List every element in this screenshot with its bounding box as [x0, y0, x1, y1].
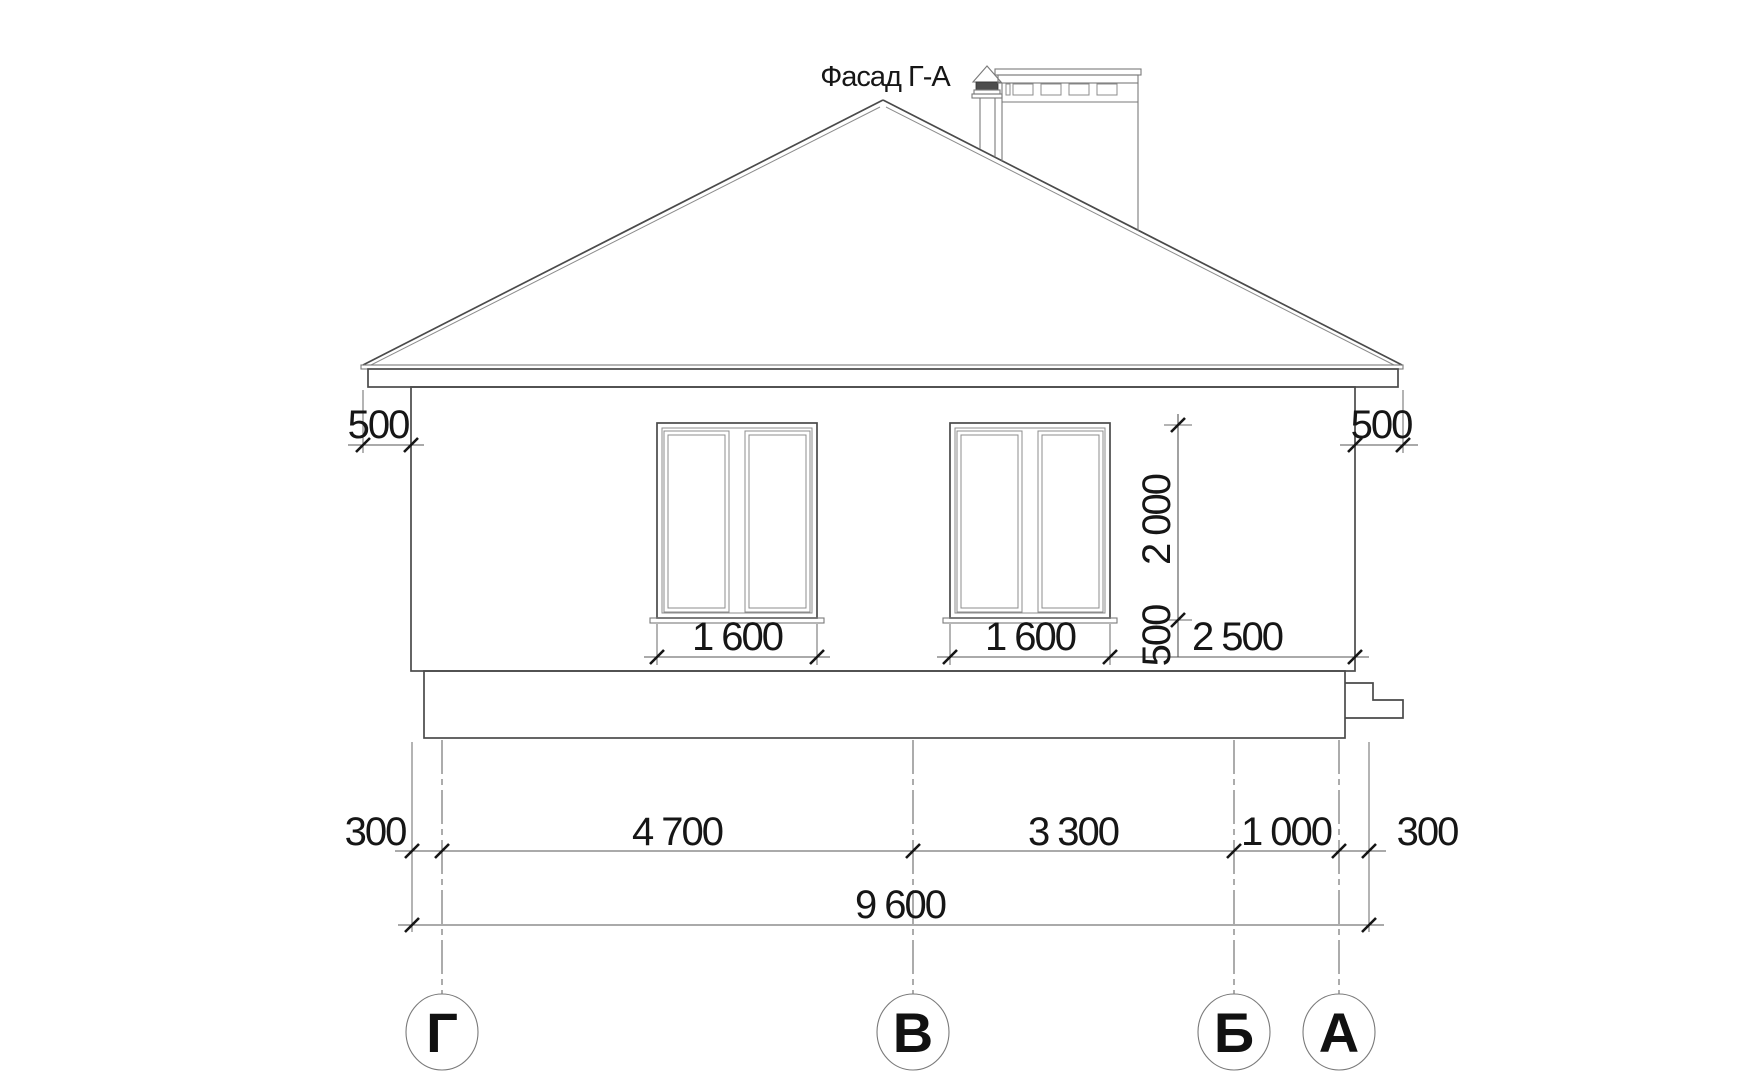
vent-collar	[976, 82, 998, 90]
dim-spacing-4700: 4 700	[632, 810, 723, 854]
axis-label-g: Г	[426, 1001, 458, 1064]
dim-eave-left-value: 500	[348, 403, 409, 447]
facade-elevation-drawing: Фасад Г-А	[0, 0, 1737, 1080]
dim-spacing-3300: 3 300	[1028, 810, 1119, 854]
dim-corner-value: 2 500	[1192, 615, 1283, 659]
dim-window-left-value: 1 600	[692, 615, 783, 659]
dim-eave-right-value: 500	[1351, 403, 1412, 447]
axis-label-a: А	[1319, 1001, 1359, 1064]
dim-overall-value: 9 600	[855, 883, 946, 927]
dim-sill-offset-value: 500	[1135, 605, 1179, 666]
axis-label-v: В	[893, 1001, 933, 1064]
dim-window-height-value: 2 000	[1135, 474, 1179, 565]
dim-spacing-1000: 1 000	[1241, 810, 1332, 854]
dim-window-right-value: 1 600	[985, 615, 1076, 659]
drawing-title: Фасад Г-А	[820, 61, 951, 93]
dim-spacing-300-left: 300	[345, 810, 406, 854]
axis-label-b: Б	[1214, 1001, 1254, 1064]
drawing-sheet: Фасад Г-А	[0, 0, 1737, 1080]
dim-spacing-300-right: 300	[1397, 810, 1458, 854]
